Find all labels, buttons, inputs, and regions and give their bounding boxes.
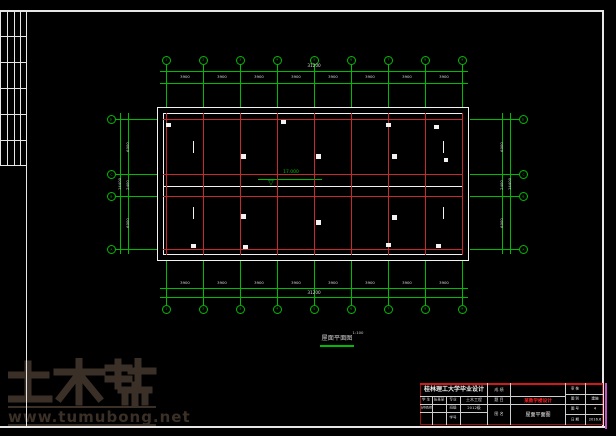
- axis-bubble-top-3: 3: [236, 56, 245, 65]
- wall-inner: [163, 113, 463, 255]
- axis-bubble-top-7-label: 7: [388, 59, 390, 62]
- dim-left-total: 14400: [118, 178, 122, 190]
- dim-bottom-span-line: [160, 288, 468, 289]
- axis-bubble-top-9-label: 9: [462, 59, 464, 62]
- plan-symbol-0: [193, 141, 194, 153]
- plan-symbol-1: [193, 207, 194, 219]
- signoff-hline-0: [0, 10, 27, 11]
- axis-bubble-right-1: C: [519, 170, 528, 179]
- dim-top-span-2: 3900: [254, 75, 264, 79]
- axis-stem-right-2: [470, 196, 519, 197]
- axis-stem-bottom-5: [351, 261, 352, 305]
- axis-stem-bottom-3: [277, 261, 278, 305]
- plan-title: 屋面平面图: [322, 335, 353, 341]
- dim-right-span-0: 6000: [500, 142, 504, 152]
- plan-symbol-12: [281, 120, 286, 124]
- grid-red-v-7: [425, 113, 426, 255]
- frame-bottom: [0, 426, 606, 428]
- axis-bubble-top-7: 7: [384, 56, 393, 65]
- grid-red-h-1: [163, 174, 463, 175]
- dim-top-span-1: 3900: [217, 75, 227, 79]
- axis-bubble-bottom-7-label: 7: [388, 308, 390, 311]
- axis-bubble-left-0: D: [107, 115, 116, 124]
- grid-red-h-0: [163, 119, 463, 120]
- axis-bubble-right-3-label: A: [522, 248, 524, 251]
- dim-right-total: 14400: [508, 178, 512, 190]
- titleblock-right-value-1: 建施: [591, 397, 598, 401]
- titleblock-right-label-2: 图 号: [571, 407, 579, 410]
- corridor-line: [163, 186, 463, 187]
- axis-bubble-left-1-label: C: [110, 173, 112, 176]
- plan-symbol-14: [434, 125, 439, 129]
- axis-stem-bottom-2: [240, 261, 241, 305]
- titleblock-vline-1: [446, 396, 447, 425]
- axis-stem-bottom-0: [166, 261, 167, 305]
- axis-stem-bottom-8: [462, 261, 463, 305]
- dim-top-span-3: 3900: [291, 75, 301, 79]
- axis-bubble-top-2-label: 2: [203, 59, 205, 62]
- axis-bubble-left-2: B: [107, 192, 116, 201]
- axis-stem-bottom-4: [314, 261, 315, 305]
- grid-red-v-3: [277, 113, 278, 255]
- signoff-hline-4: [0, 114, 27, 115]
- frame-right: [602, 10, 604, 427]
- plan-title-scale: 1:100: [353, 331, 364, 335]
- plan-symbol-3: [443, 207, 444, 219]
- titleblock-hline-2: [420, 412, 487, 413]
- axis-bubble-left-0-label: D: [110, 118, 112, 121]
- titleblock-hline-0: [420, 396, 565, 397]
- watermark: 土木帮 www.tumubong.net: [6, 356, 164, 428]
- signoff-hline-2: [0, 62, 27, 63]
- axis-bubble-right-2: B: [519, 192, 528, 201]
- dim-bottom-span-7: 3900: [439, 281, 449, 285]
- axis-bubble-left-2-label: B: [110, 195, 112, 198]
- grid-red-v-1: [203, 113, 204, 255]
- axis-bubble-left-1: C: [107, 170, 116, 179]
- axis-bubble-bottom-5: 5: [310, 305, 319, 314]
- titleblock-right-value-2: 4: [593, 407, 595, 411]
- plan-symbol-8: [241, 214, 246, 219]
- titleblock-magenta-edge: [605, 383, 607, 429]
- plan-symbol-13: [386, 123, 391, 127]
- plan-symbol-5: [316, 154, 321, 159]
- axis-stem-bottom-7: [425, 261, 426, 305]
- axis-bubble-bottom-3-label: 3: [240, 308, 242, 311]
- dim-bottom-total-line: [160, 297, 468, 298]
- signoff-hline-1: [0, 36, 27, 37]
- axis-bubble-top-4: 4: [273, 56, 282, 65]
- titleblock-hline-3: [565, 394, 603, 395]
- axis-bubble-bottom-3: 3: [236, 305, 245, 314]
- grid-red-v-0: [166, 113, 167, 255]
- axis-stem-right-0: [470, 119, 519, 120]
- axis-bubble-top-5-label: 5: [314, 59, 316, 62]
- axis-bubble-bottom-2-label: 2: [203, 308, 205, 311]
- dim-top-span-line: [160, 83, 468, 84]
- axis-bubble-top-3-label: 3: [240, 59, 242, 62]
- axis-bubble-right-2-label: B: [522, 195, 524, 198]
- dim-right-span-2: 6000: [500, 218, 504, 228]
- axis-bubble-bottom-7: 7: [384, 305, 393, 314]
- axis-bubble-bottom-4-label: 4: [277, 308, 279, 311]
- plan-symbol-4: [241, 154, 246, 159]
- tumubang-logo-icon: [8, 358, 158, 406]
- axis-bubble-bottom-1: 1: [162, 305, 171, 314]
- plan-symbol-2: [443, 141, 444, 153]
- axis-bubble-right-3: A: [519, 245, 528, 254]
- dim-top-span-6: 3900: [402, 75, 412, 79]
- titleblock-hline-1: [420, 404, 603, 405]
- dim-top-total-line: [160, 71, 468, 72]
- plan-symbol-6: [392, 154, 397, 159]
- plan-symbol-10: [392, 215, 397, 220]
- plan-symbol-15: [191, 244, 196, 248]
- axis-bubble-top-8: 8: [421, 56, 430, 65]
- axis-stem-bottom-6: [388, 261, 389, 305]
- dim-left-span-0: 6000: [126, 142, 130, 152]
- frame-top: [0, 10, 604, 12]
- signoff-hline-3: [0, 88, 27, 89]
- axis-bubble-left-3: A: [107, 245, 116, 254]
- titleblock-vline-0: [432, 396, 433, 425]
- signoff-hline-6: [0, 165, 27, 166]
- axis-bubble-right-0-label: D: [522, 118, 524, 121]
- grid-red-v-2: [240, 113, 241, 255]
- axis-bubble-bottom-9: 9: [458, 305, 467, 314]
- dim-left-span-1: 2400: [126, 180, 130, 190]
- titleblock-right-label-0: 审 核: [571, 387, 579, 390]
- grid-red-v-8: [462, 113, 463, 255]
- dim-right-span-1: 2400: [500, 180, 504, 190]
- dim-left-span-2: 6000: [126, 218, 130, 228]
- axis-stem-left-3: [116, 249, 157, 250]
- axis-bubble-bottom-4: 4: [273, 305, 282, 314]
- axis-bubble-top-2: 2: [199, 56, 208, 65]
- plan-title-underline: [320, 345, 354, 347]
- titleblock-hline-4: [565, 414, 603, 415]
- grid-red-h-2: [163, 196, 463, 197]
- axis-bubble-bottom-6: 6: [347, 305, 356, 314]
- grid-red-h-3: [163, 249, 463, 250]
- axis-stem-right-1: [470, 174, 519, 175]
- dim-bottom-span-3: 3900: [291, 281, 301, 285]
- dim-bottom-total: 31200: [307, 290, 320, 294]
- dim-top-total: 31200: [307, 64, 320, 68]
- dim-bottom-span-6: 3900: [402, 281, 412, 285]
- axis-bubble-bottom-1-label: 1: [166, 308, 168, 311]
- axis-bubble-top-1: 1: [162, 56, 171, 65]
- grid-red-v-4: [314, 113, 315, 255]
- axis-bubble-top-6: 6: [347, 56, 356, 65]
- axis-stem-left-1: [116, 174, 157, 175]
- dim-top-span-0: 3900: [180, 75, 190, 79]
- dim-top-span-5: 3900: [365, 75, 375, 79]
- axis-stem-right-3: [470, 249, 519, 250]
- titleblock-right-label-1: 图 别: [571, 397, 579, 400]
- axis-bubble-bottom-5-label: 5: [314, 308, 316, 311]
- grid-red-v-6: [388, 113, 389, 255]
- signoff-hline-5: [0, 140, 27, 141]
- dim-bottom-span-0: 3900: [180, 281, 190, 285]
- plan-symbol-17: [386, 243, 391, 247]
- dim-top-span-7: 3900: [439, 75, 449, 79]
- axis-stem-left-2: [116, 196, 157, 197]
- titleblock-right-value-3: 2016.6: [588, 418, 601, 422]
- titleblock-vline-2: [460, 396, 461, 425]
- plan-symbol-11: [166, 123, 171, 127]
- axis-stem-left-0: [116, 119, 157, 120]
- dim-top-span-4: 3900: [328, 75, 338, 79]
- plan-symbol-18: [436, 244, 441, 248]
- axis-bubble-top-1-label: 1: [166, 59, 168, 62]
- axis-bubble-top-6-label: 6: [351, 59, 353, 62]
- axis-bubble-right-1-label: C: [522, 173, 524, 176]
- titleblock-right-label-3: 日 期: [571, 418, 579, 421]
- plan-symbol-9: [316, 220, 321, 225]
- dim-bottom-span-1: 3900: [217, 281, 227, 285]
- cad-sheet: 屋面平面图 1:100 17.000 ▽ 桂林理工大学毕业设计 成 绩 学 生 …: [0, 0, 616, 436]
- dim-bottom-span-4: 3900: [328, 281, 338, 285]
- axis-bubble-top-9: 9: [458, 56, 467, 65]
- plan-symbol-16: [243, 245, 248, 249]
- axis-stem-bottom-1: [203, 261, 204, 305]
- axis-bubble-top-8-label: 8: [425, 59, 427, 62]
- axis-bubble-bottom-2: 2: [199, 305, 208, 314]
- axis-bubble-right-0: D: [519, 115, 528, 124]
- axis-bubble-bottom-9-label: 9: [462, 308, 464, 311]
- dim-bottom-span-2: 3900: [254, 281, 264, 285]
- axis-bubble-bottom-8-label: 8: [425, 308, 427, 311]
- dim-bottom-span-5: 3900: [365, 281, 375, 285]
- axis-bubble-top-4-label: 4: [277, 59, 279, 62]
- axis-bubble-left-3-label: A: [110, 248, 112, 251]
- plan-symbol-7: [444, 158, 448, 162]
- grid-red-v-5: [351, 113, 352, 255]
- axis-bubble-bottom-6-label: 6: [351, 308, 353, 311]
- titleblock-top-edge: [420, 383, 603, 385]
- axis-bubble-bottom-8: 8: [421, 305, 430, 314]
